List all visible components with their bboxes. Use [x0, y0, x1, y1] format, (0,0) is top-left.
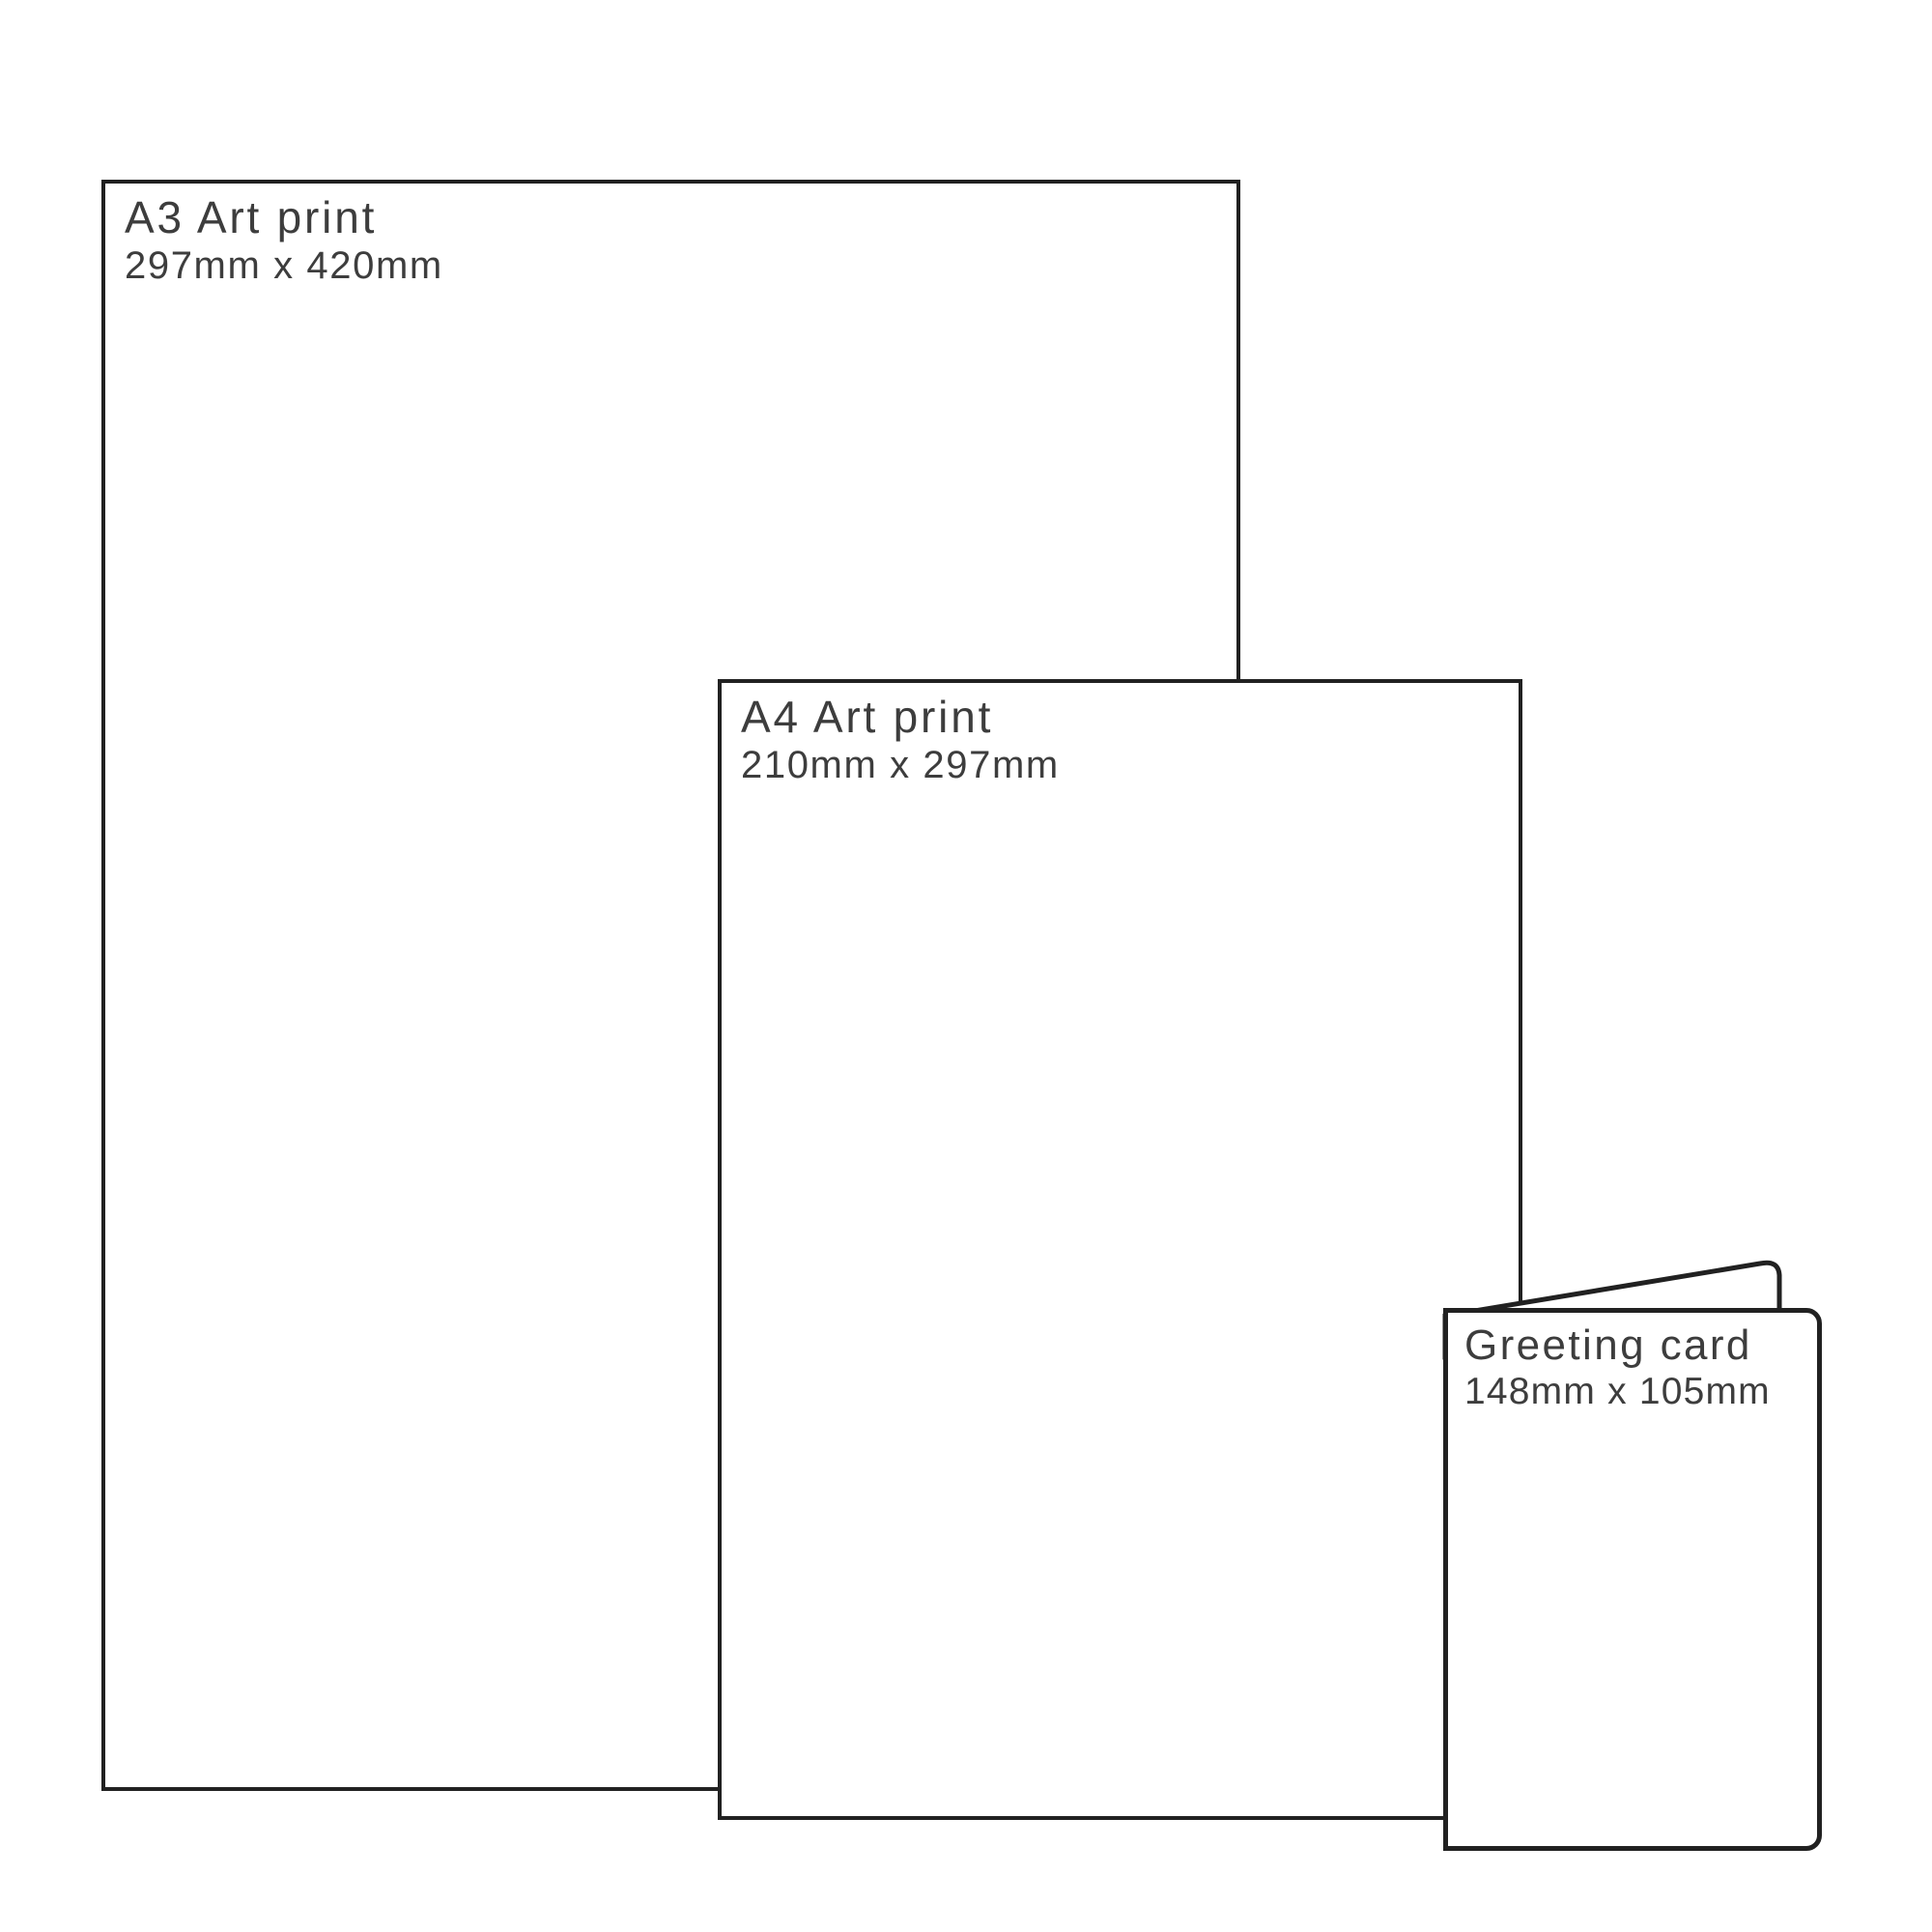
a4-print-title: A4 Art print	[741, 691, 1060, 743]
a3-print-title: A3 Art print	[125, 191, 443, 243]
a3-print-label: A3 Art print 297mm x 420mm	[125, 191, 443, 288]
print-size-comparison-diagram: A3 Art print 297mm x 420mm A4 Art print …	[0, 0, 1932, 1932]
greeting-card-dimensions: 148mm x 105mm	[1464, 1371, 1771, 1414]
a4-print-outline: A4 Art print 210mm x 297mm	[718, 679, 1522, 1820]
a4-print-dimensions: 210mm x 297mm	[741, 743, 1060, 787]
greeting-card-title: Greeting card	[1464, 1321, 1771, 1371]
a4-print-label: A4 Art print 210mm x 297mm	[741, 691, 1060, 787]
greeting-card-outline: Greeting card 148mm x 105mm	[1443, 1308, 1822, 1851]
greeting-card-label: Greeting card 148mm x 105mm	[1464, 1321, 1771, 1414]
a3-print-dimensions: 297mm x 420mm	[125, 243, 443, 288]
